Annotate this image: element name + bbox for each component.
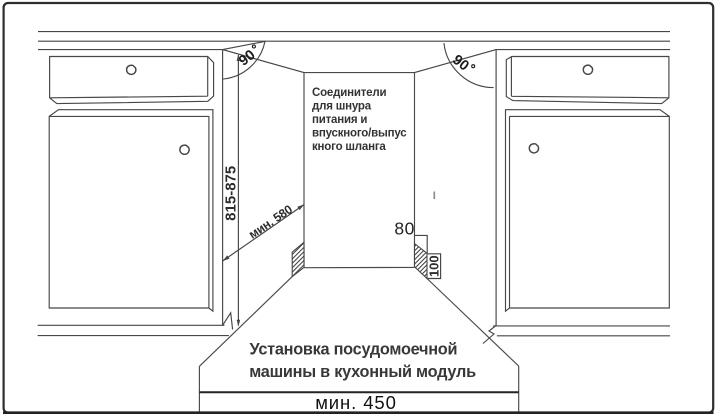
svg-text:мин. 450: мин. 450 bbox=[315, 392, 397, 413]
svg-text:машины в кухонный модуль: машины в кухонный модуль bbox=[249, 363, 476, 381]
svg-text:впускного/выпус: впускного/выпус bbox=[312, 127, 407, 139]
svg-text:100: 100 bbox=[426, 255, 441, 277]
svg-text:Установка посудомоечной: Установка посудомоечной bbox=[250, 340, 458, 358]
svg-text:питания и: питания и bbox=[312, 114, 367, 126]
svg-text:80: 80 bbox=[394, 219, 415, 239]
svg-text:815-875: 815-875 bbox=[223, 166, 240, 221]
svg-text:кного шланга: кного шланга bbox=[312, 141, 386, 153]
svg-text:Соединители: Соединители bbox=[312, 87, 386, 99]
svg-text:для шнура: для шнура bbox=[312, 100, 372, 112]
